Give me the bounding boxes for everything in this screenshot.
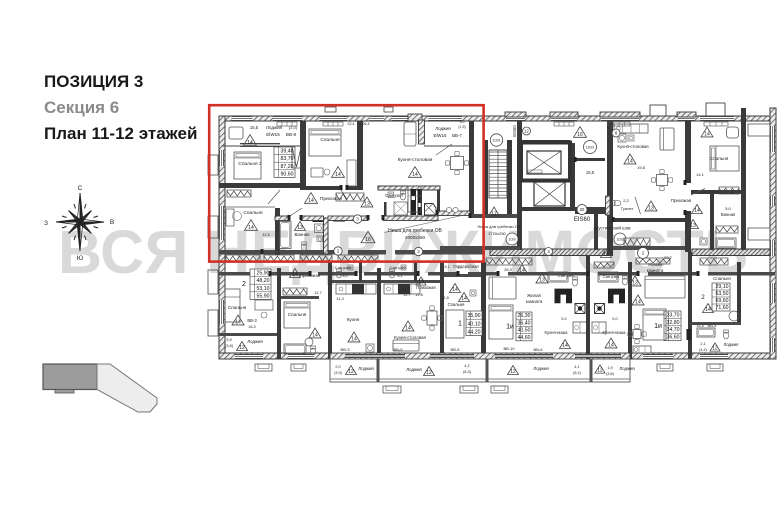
svg-text:11,5: 11,5 (262, 232, 270, 237)
svg-text:ПОЗИЦИЯ 3: ПОЗИЦИЯ 3 (44, 72, 143, 91)
svg-text:Секция 6: Секция 6 (44, 98, 119, 117)
svg-text:С: С (78, 185, 83, 192)
svg-text:Жилая: Жилая (648, 262, 663, 267)
svg-text:14: 14 (704, 131, 710, 137)
svg-text:20: 20 (580, 207, 585, 212)
svg-text:71,60: 71,60 (716, 305, 729, 311)
svg-text:Ю: Ю (77, 255, 84, 262)
svg-text:5,0: 5,0 (612, 317, 617, 321)
svg-text:12,8: 12,8 (441, 296, 448, 300)
svg-text:Акустический шов: Акустический шов (594, 226, 632, 231)
svg-text:63,50: 63,50 (716, 291, 729, 297)
svg-text:Кухня-столовая: Кухня-столовая (398, 157, 433, 163)
svg-text:Спальня: Спальня (228, 305, 247, 310)
svg-text:ВВ-6: ВВ-6 (534, 347, 544, 352)
svg-text:Сан.узел: Сан.узел (335, 265, 352, 270)
svg-text:(3,8): (3,8) (225, 343, 234, 348)
svg-text:2: 2 (242, 281, 246, 288)
svg-text:12: 12 (524, 129, 529, 134)
svg-text:Лоджия: Лоджия (724, 342, 739, 347)
svg-text:Спальня: Спальня (288, 312, 307, 317)
svg-text:13: 13 (364, 201, 370, 207)
svg-text:69,60: 69,60 (716, 298, 729, 304)
svg-text:36,40: 36,40 (518, 320, 531, 326)
svg-text:4,1: 4,1 (574, 365, 579, 369)
svg-text:14: 14 (519, 268, 525, 274)
svg-text:35,90: 35,90 (468, 313, 481, 319)
svg-text:Ванная: Ванная (294, 232, 310, 237)
svg-text:14: 14 (705, 307, 711, 313)
svg-text:Ванная: Ванная (721, 212, 735, 217)
svg-text:Лоджия: Лоджия (533, 366, 549, 371)
svg-text:EIS60: EIS60 (574, 217, 591, 223)
svg-text:ElW15: ElW15 (266, 132, 280, 137)
svg-text:Спальня: Спальня (710, 156, 729, 161)
svg-text:19,8: 19,8 (637, 165, 646, 170)
svg-text:12: 12 (426, 370, 432, 376)
svg-text:12,7: 12,7 (403, 293, 410, 297)
svg-text:11,7: 11,7 (314, 290, 322, 295)
svg-text:14: 14 (412, 172, 418, 178)
svg-text:14: 14 (247, 140, 253, 146)
svg-text:ВВ-5: ВВ-5 (451, 347, 461, 352)
svg-text:13: 13 (648, 205, 654, 211)
svg-text:1102: 1102 (616, 238, 623, 242)
svg-text:Кухня-столовая: Кухня-столовая (394, 335, 426, 340)
svg-text:Сан.узел: Сан.узел (603, 274, 620, 279)
svg-text:13: 13 (690, 223, 696, 229)
svg-text:16: 16 (365, 237, 371, 243)
svg-text:12: 12 (239, 345, 245, 351)
svg-text:14: 14 (452, 287, 458, 293)
svg-text:Кухня-ниша: Кухня-ниша (545, 330, 569, 335)
svg-text:EIS60: EIS60 (512, 125, 517, 137)
svg-text:3,0: 3,0 (460, 120, 465, 124)
svg-text:1и: 1и (654, 323, 662, 330)
svg-text:Кухня-столовая: Кухня-столовая (617, 144, 649, 149)
svg-text:Спальня: Спальня (243, 210, 263, 216)
svg-text:29,10: 29,10 (716, 284, 729, 290)
svg-text:110/3: 110/3 (586, 146, 594, 150)
svg-text:(3,9): (3,9) (334, 371, 343, 375)
svg-text:1,9: 1,9 (607, 366, 612, 370)
svg-text:ВВ-10: ВВ-10 (503, 346, 515, 351)
svg-text:ВВ-7: ВВ-7 (452, 133, 462, 138)
svg-text:11,3: 11,3 (336, 296, 344, 301)
svg-text:1100: 1100 (508, 238, 515, 242)
svg-text:Ниша для гребенки ОВ: Ниша для гребенки ОВ (388, 228, 442, 234)
svg-text:16: 16 (603, 252, 609, 258)
svg-text:З: З (44, 220, 48, 227)
svg-text:3,1: 3,1 (444, 265, 449, 269)
svg-text:17: 17 (491, 211, 497, 217)
svg-text:Лоджия: Лоджия (435, 126, 451, 131)
svg-text:14: 14 (308, 198, 314, 204)
svg-text:15,5: 15,5 (250, 125, 259, 130)
svg-text:14: 14 (608, 342, 614, 348)
svg-text:ВВ-3: ВВ-3 (247, 318, 257, 323)
svg-text:53,10: 53,10 (257, 286, 270, 292)
svg-text:40,10: 40,10 (468, 321, 481, 327)
svg-text:2,2: 2,2 (623, 198, 629, 203)
svg-text:14: 14 (248, 225, 254, 231)
svg-text:12: 12 (712, 346, 718, 352)
svg-text:26,3: 26,3 (504, 267, 513, 272)
svg-text:(8,3): (8,3) (463, 370, 472, 374)
svg-text:ВВ-4: ВВ-4 (708, 323, 718, 328)
svg-text:14: 14 (694, 208, 700, 214)
svg-text:13: 13 (297, 225, 303, 231)
svg-text:26,4: 26,4 (363, 122, 370, 126)
svg-text:2,0: 2,0 (335, 365, 340, 369)
svg-text:23,7: 23,7 (664, 255, 673, 260)
svg-text:В: В (110, 219, 114, 226)
svg-text:Прихожая: Прихожая (671, 198, 692, 203)
svg-text:14: 14 (627, 158, 633, 164)
svg-text:87,20: 87,20 (281, 164, 294, 170)
svg-text:34,70: 34,70 (667, 327, 680, 333)
svg-text:1720х250: 1720х250 (488, 231, 506, 236)
svg-text:комната: комната (526, 299, 543, 304)
svg-text:12: 12 (348, 369, 354, 375)
svg-text:5,2: 5,2 (561, 317, 566, 321)
svg-text:90,60: 90,60 (281, 171, 294, 177)
svg-text:40,50: 40,50 (518, 328, 531, 334)
svg-text:Спальня: Спальня (448, 302, 465, 307)
svg-text:Лоджия: Лоджия (619, 366, 635, 371)
svg-text:13: 13 (418, 280, 424, 286)
svg-text:Спальня: Спальня (320, 137, 340, 143)
svg-text:12,8: 12,8 (415, 293, 422, 297)
svg-text:14: 14 (405, 325, 411, 331)
svg-text:Жилая: Жилая (527, 293, 542, 298)
svg-text:(3,8): (3,8) (606, 372, 615, 376)
svg-text:14: 14 (312, 332, 318, 338)
svg-text:12: 12 (597, 368, 603, 374)
svg-text:14,1: 14,1 (696, 172, 705, 177)
svg-text:48,20: 48,20 (257, 278, 270, 284)
svg-text:Лоджия: Лоджия (406, 367, 422, 372)
svg-text:Лоджия: Лоджия (358, 366, 374, 371)
svg-text:3,9: 3,9 (226, 337, 232, 342)
svg-text:13: 13 (632, 280, 638, 286)
svg-text:(1,5): (1,5) (458, 125, 465, 129)
svg-text:14: 14 (351, 336, 357, 342)
svg-text:3,0: 3,0 (342, 274, 347, 278)
svg-text:39,40: 39,40 (281, 149, 294, 155)
svg-text:15,8: 15,8 (696, 324, 703, 328)
svg-text:Кухня: Кухня (347, 317, 360, 322)
svg-text:12: 12 (510, 369, 516, 375)
svg-text:5,0: 5,0 (725, 206, 731, 211)
svg-text:14: 14 (335, 172, 341, 178)
svg-text:14: 14 (562, 343, 568, 349)
svg-text:4,2: 4,2 (464, 364, 469, 368)
svg-text:25,90: 25,90 (257, 271, 270, 277)
svg-text:комната: комната (647, 268, 664, 273)
svg-text:16: 16 (577, 132, 583, 138)
svg-text:Сан.узел: Сан.узел (390, 265, 407, 270)
svg-text:2,1: 2,1 (700, 342, 705, 346)
svg-text:16,5: 16,5 (586, 170, 595, 175)
svg-text:1и: 1и (506, 323, 514, 330)
svg-text:36,60: 36,60 (667, 335, 680, 341)
svg-text:Туалет: Туалет (621, 206, 634, 211)
svg-text:83,70: 83,70 (281, 156, 294, 162)
svg-text:Спальня: Спальня (713, 276, 731, 281)
svg-text:32,80: 32,80 (667, 320, 680, 326)
svg-text:План 11-12 этажей: План 11-12 этажей (44, 124, 197, 143)
svg-text:Лоджия: Лоджия (247, 339, 263, 344)
svg-text:23,70: 23,70 (667, 312, 680, 318)
svg-text:110/1: 110/1 (492, 139, 500, 143)
svg-text:14: 14 (635, 299, 641, 305)
svg-text:55,90: 55,90 (257, 293, 270, 299)
svg-text:Гардеробная: Гардеробная (453, 264, 478, 269)
svg-text:44,60: 44,60 (518, 335, 531, 341)
svg-text:2000х250: 2000х250 (405, 235, 426, 240)
svg-text:26,30: 26,30 (518, 313, 531, 319)
svg-text:(8,2): (8,2) (573, 371, 582, 375)
svg-text:Спальня 3: Спальня 3 (238, 161, 262, 167)
svg-text:1: 1 (458, 320, 462, 327)
svg-text:3,1: 3,1 (397, 274, 402, 278)
svg-text:16,2: 16,2 (248, 324, 257, 329)
svg-text:ВВ-3: ВВ-3 (341, 347, 351, 352)
svg-text:(4,4): (4,4) (699, 348, 708, 352)
svg-text:13: 13 (539, 277, 545, 283)
svg-text:44,20: 44,20 (468, 330, 481, 336)
svg-text:ВВ-8: ВВ-8 (286, 132, 297, 137)
svg-text:Прихожая: Прихожая (416, 285, 435, 290)
svg-text:ВВ-5: ВВ-5 (394, 347, 404, 352)
svg-text:22,4: 22,4 (348, 122, 355, 126)
svg-text:ElW15: ElW15 (434, 133, 447, 138)
svg-text:14: 14 (292, 272, 298, 278)
